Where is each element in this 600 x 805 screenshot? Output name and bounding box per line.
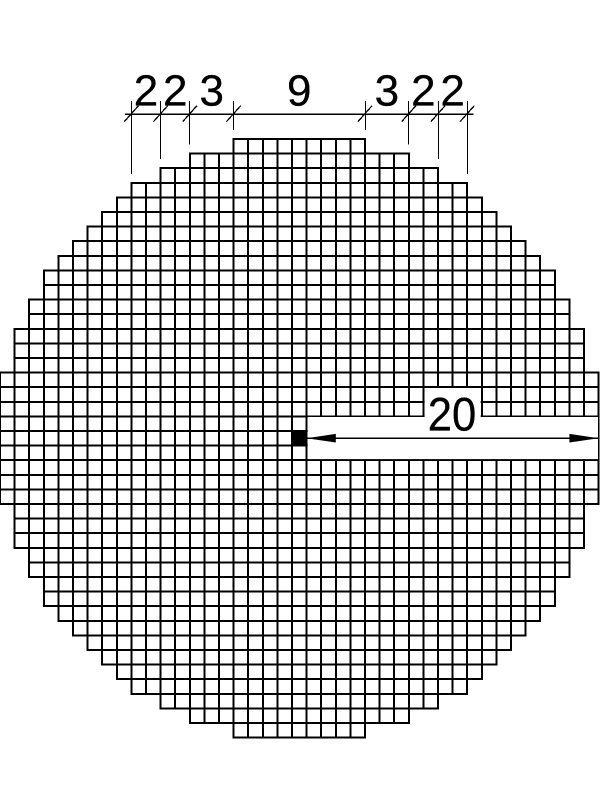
svg-text:2: 2 [411, 66, 435, 115]
svg-text:9: 9 [287, 66, 311, 115]
svg-text:20: 20 [428, 388, 477, 441]
svg-text:2: 2 [163, 66, 187, 115]
svg-text:2: 2 [134, 66, 158, 115]
svg-text:3: 3 [199, 66, 223, 115]
svg-text:2: 2 [440, 66, 464, 115]
svg-text:3: 3 [375, 66, 399, 115]
